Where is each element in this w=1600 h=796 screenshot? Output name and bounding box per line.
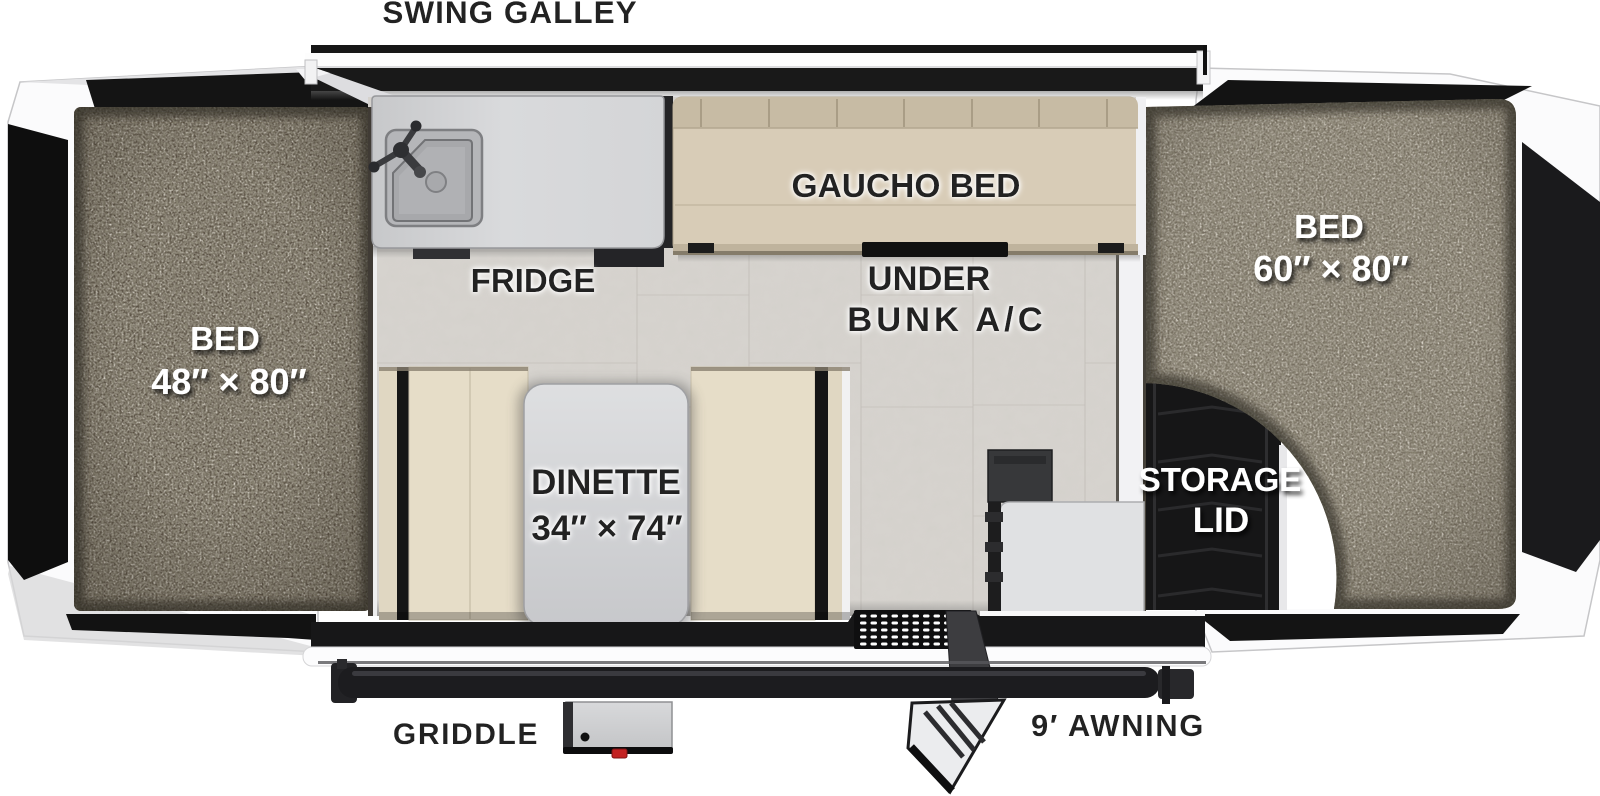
svg-text:LID: LID — [1193, 501, 1249, 540]
svg-text:SWING GALLEY: SWING GALLEY — [382, 0, 637, 30]
svg-text:60″ × 80″: 60″ × 80″ — [1253, 248, 1409, 289]
svg-text:BUNK A/C: BUNK A/C — [847, 301, 1046, 339]
svg-text:BED: BED — [1294, 208, 1364, 245]
svg-text:48″ × 80″: 48″ × 80″ — [151, 361, 307, 402]
svg-text:UNDER: UNDER — [868, 260, 991, 298]
svg-text:BED: BED — [190, 320, 260, 357]
svg-text:34″ × 74″: 34″ × 74″ — [531, 509, 683, 548]
svg-text:STORAGE: STORAGE — [1139, 461, 1302, 498]
svg-text:GAUCHO BED: GAUCHO BED — [792, 168, 1021, 205]
svg-text:DINETTE: DINETTE — [531, 463, 681, 502]
svg-text:GRIDDLE: GRIDDLE — [393, 718, 539, 751]
svg-text:9′ AWNING: 9′ AWNING — [1031, 708, 1205, 743]
svg-text:FRIDGE: FRIDGE — [471, 262, 596, 299]
